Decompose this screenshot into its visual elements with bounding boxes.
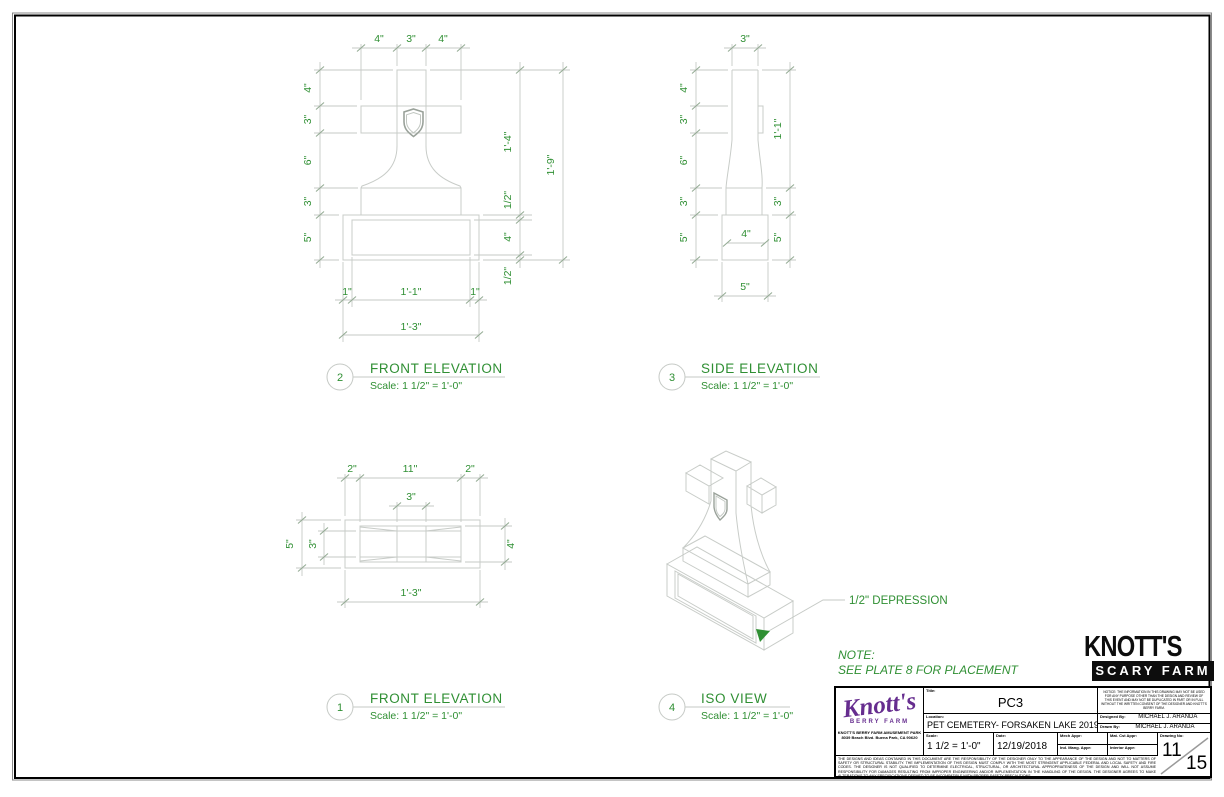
depression-annotation: 1/2" DEPRESSION — [849, 595, 948, 607]
approval-cell-ind: Ind. Mang. Appr: — [1058, 745, 1108, 757]
drawing-number-cell: Drawing No: 11 15 — [1158, 733, 1210, 776]
dim-label: 4" — [502, 232, 514, 242]
designed-by-cell: Designed By: MICHAEL J. ARANDA — [1098, 714, 1210, 724]
company-address-line2: 8039 Beach Blvd. Buena Park, CA 90620 — [836, 735, 923, 740]
view-title: SIDE ELEVATION — [701, 361, 818, 376]
scary-farm-logo-knotts: KNOTT'S — [1084, 633, 1191, 661]
title-block: Knott's BERRY FARM KNOTT'S BERRY FARM AM… — [834, 686, 1212, 778]
approval-label: Mech Appr: — [1058, 733, 1107, 738]
dim-label: 1'-1" — [401, 286, 422, 298]
dim-label: 1'-4" — [502, 131, 514, 152]
view-scale: Scale: 1 1/2" = 1'-0" — [701, 380, 793, 392]
location-cell: Location: PET CEMETERY- FORSAKEN LAKE 20… — [924, 714, 1098, 733]
drawn-by-label: Drawn By: — [1098, 724, 1120, 729]
view-title: ISO VIEW — [701, 691, 767, 706]
view-number: 2 — [337, 372, 343, 384]
date-cell: Date: 12/19/2018 — [994, 733, 1058, 756]
dimension-ticks-fe2 — [316, 45, 567, 339]
dim-label: 3" — [406, 33, 416, 45]
view-front-elevation-1: 2" 11" 2" 3" 5" 3" 4" 1'-3" 1 FRONT ELEV… — [284, 463, 517, 722]
dim-label: 3" — [302, 196, 314, 206]
sheet-total: 15 — [1186, 753, 1207, 775]
view-iso-4: 1/2" DEPRESSION 4 ISO VIEW Scale: 1 1/2"… — [659, 451, 948, 722]
sheet-border-inner — [15, 16, 1210, 779]
drawn-by-cell: Drawn By: MICHAEL J. ARANDA — [1098, 724, 1210, 734]
dim-label: 2" — [347, 463, 357, 475]
approval-label: Ind. Mang. Appr: — [1058, 745, 1107, 750]
dim-label: 6" — [678, 155, 690, 165]
dim-label: 5" — [302, 232, 314, 242]
dim-label: 4" — [438, 33, 448, 45]
dim-label: 3" — [678, 196, 690, 206]
depression-leader-line — [767, 600, 845, 632]
view-number: 1 — [337, 702, 343, 714]
drawing-canvas: 4" 3" 4" 4" 3" 6" 3" 5" 1'-4" 1'-9" 1/2"… — [0, 0, 1224, 792]
headstone-front-geometry — [343, 70, 479, 260]
dim-label: 1'-9" — [545, 154, 557, 175]
note-label: NOTE: — [838, 648, 875, 662]
dim-label: 5" — [284, 539, 296, 549]
dimension-lines-se3 — [690, 44, 796, 302]
scary-farm-logo-bar: SCARY FARM — [1092, 661, 1214, 681]
view-scale: Scale: 1 1/2" = 1'-0" — [701, 710, 793, 722]
dim-label: 3" — [307, 539, 319, 549]
view-scale: Scale: 1 1/2" = 1'-0" — [370, 710, 462, 722]
dim-label: 1" — [342, 286, 352, 298]
dim-label: 3" — [772, 196, 784, 206]
approval-label: Mat. Cst Appr: — [1108, 733, 1157, 738]
dim-label: 4" — [302, 83, 314, 93]
approval-cell-interior: Interior Appr: — [1108, 745, 1158, 757]
date-value: 12/19/2018 — [994, 741, 1057, 752]
dim-label: 1'-3" — [401, 587, 422, 599]
depression-arrow — [756, 629, 770, 642]
dim-label: 5" — [678, 232, 690, 242]
approval-cell-mech: Mech Appr: — [1058, 733, 1108, 745]
sheet-border-outer — [13, 13, 1212, 780]
disclaimer-cell: THE DESIGNS AND IDEAS CONTAINED IN THIS … — [836, 756, 1158, 776]
dim-label: 1/2" — [502, 191, 514, 210]
scale-value: 1 1/2 = 1'-0" — [924, 741, 993, 752]
iso-headstone-geometry — [667, 451, 793, 650]
view-number: 3 — [669, 372, 675, 384]
title-block-logo-cell: Knott's BERRY FARM KNOTT'S BERRY FARM AM… — [836, 688, 924, 756]
location-value: PET CEMETERY- FORSAKEN LAKE 2019 — [924, 720, 1097, 730]
dim-label: 1/2" — [502, 267, 514, 286]
sheet-number: 11 — [1162, 740, 1182, 762]
dim-label: 1" — [470, 286, 480, 298]
dim-label: 11" — [403, 463, 418, 475]
placement-note: NOTE: SEE PLATE 8 FOR PLACEMENT — [838, 648, 1019, 677]
dimension-ticks-fe1 — [298, 475, 509, 606]
shield-emblem-iso-inner — [716, 496, 725, 517]
drawing-title-value: PC3 — [924, 695, 1097, 710]
dim-label: 4" — [678, 83, 690, 93]
disclaimer-fine-print: THE DESIGNS AND IDEAS CONTAINED IN THIS … — [836, 756, 1158, 776]
note-text: SEE PLATE 8 FOR PLACEMENT — [838, 663, 1019, 677]
dim-label: 1'-1" — [772, 118, 784, 139]
approval-cell-mat: Mat. Cst Appr: — [1108, 733, 1158, 745]
shield-emblem-front-inner — [407, 113, 421, 133]
drawing-sheet: 4" 3" 4" 4" 3" 6" 3" 5" 1'-4" 1'-9" 1/2"… — [0, 0, 1224, 792]
scary-farm-logo: KNOTT'S SCARY FARM — [1062, 633, 1214, 685]
approval-label: Interior Appr: — [1108, 745, 1157, 750]
scale-label: Scale: — [924, 733, 993, 738]
dim-label: 4" — [374, 33, 384, 45]
view-front-elevation-2: 4" 3" 4" 4" 3" 6" 3" 5" 1'-4" 1'-9" 1/2"… — [302, 33, 570, 392]
title-cell: Title: PC3 — [924, 688, 1098, 714]
dimension-ticks-se3 — [692, 45, 794, 300]
designed-by-label: Designed By: — [1098, 714, 1126, 719]
view-title: FRONT ELEVATION — [370, 691, 503, 706]
scale-cell: Scale: 1 1/2 = 1'-0" — [924, 733, 994, 756]
dim-label: 3" — [406, 491, 416, 503]
dimension-lines-fe2 — [314, 44, 570, 342]
dim-label: 2" — [465, 463, 475, 475]
dim-label: 3" — [740, 33, 750, 45]
view-scale: Scale: 1 1/2" = 1'-0" — [370, 380, 462, 392]
dim-label: 6" — [302, 155, 314, 165]
dim-label: 5" — [740, 281, 750, 293]
view-title: FRONT ELEVATION — [370, 361, 503, 376]
dim-label: 4" — [505, 539, 517, 549]
dim-label: 1'-3" — [401, 321, 422, 333]
title-label: Title: — [924, 688, 1097, 693]
view-number: 4 — [669, 702, 675, 714]
base-plan-geometry — [345, 520, 480, 568]
dim-label: 3" — [678, 114, 690, 124]
notice-cell: NOTICE: THE INFORMATION IN THIS DRAWING … — [1098, 688, 1210, 714]
date-label: Date: — [994, 733, 1057, 738]
view-side-elevation-3: 3" 4" 3" 6" 3" 5" 1'-1" 3" 5" 4" 5" 3 SI… — [659, 33, 820, 392]
dim-label: 3" — [302, 114, 314, 124]
dim-label: 4" — [741, 228, 751, 240]
notice-fine-print: NOTICE: THE INFORMATION IN THIS DRAWING … — [1098, 688, 1210, 712]
dim-label: 5" — [772, 232, 784, 242]
location-label: Location: — [924, 714, 1097, 719]
